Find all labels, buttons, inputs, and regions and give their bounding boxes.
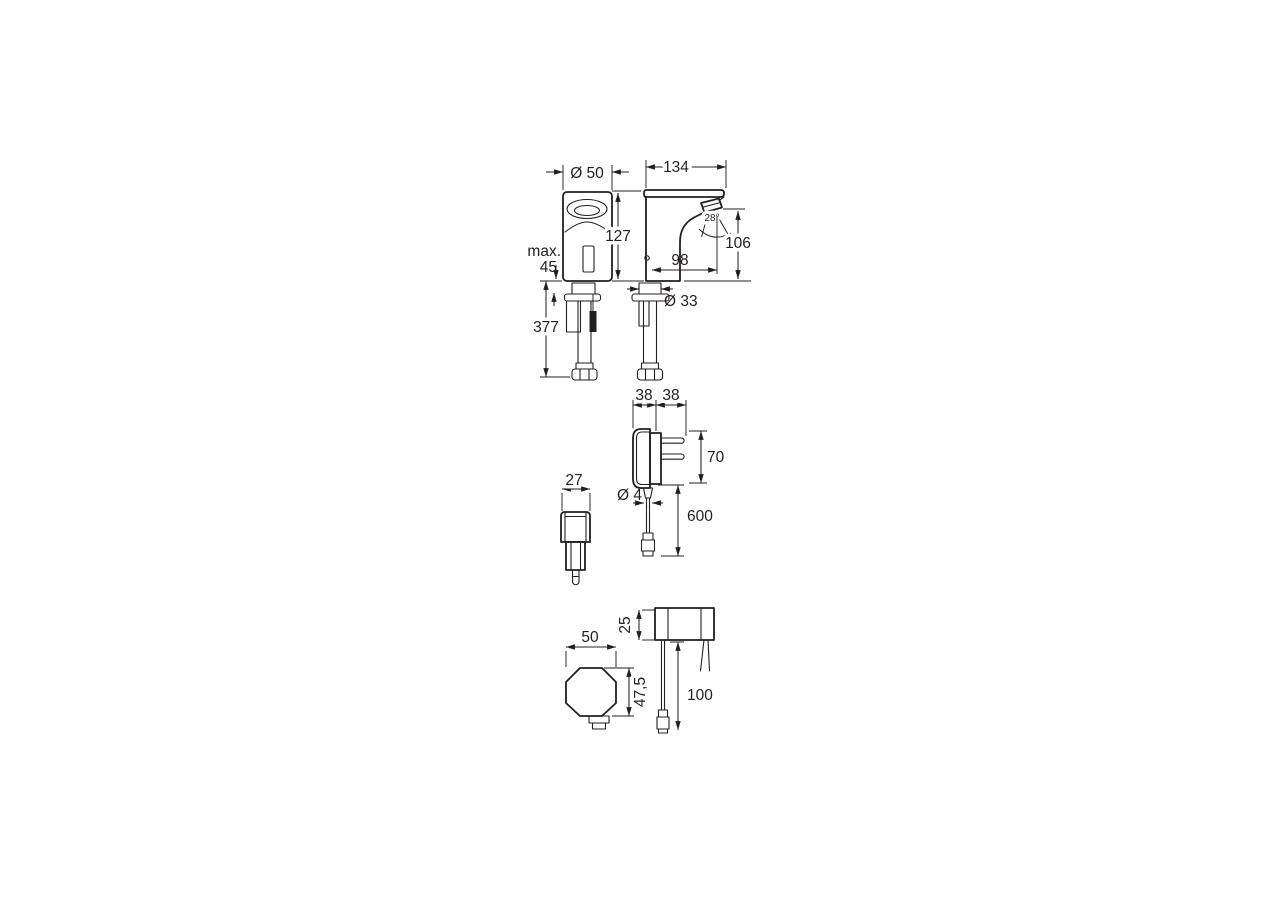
hose-collar-side [642,363,659,369]
control-box-octagon [566,668,616,716]
dim-cable-diameter: Ø 4 [617,487,642,504]
psu-body [633,429,650,488]
dc-connector-tip [643,551,653,556]
dim-box-cable-length: 100 [687,687,713,704]
dim-side-height: 127 [605,228,631,245]
faucet-top-cap [644,190,724,197]
psu-cable-boot [644,488,653,498]
dim-reach: 98 [671,252,688,269]
control-box-side-body [655,608,714,640]
hose-nut-front [572,369,597,380]
dim-psu-pin-depth: 38 [662,387,679,404]
sensor-window [583,246,594,272]
sensor-cable-weight [590,311,597,332]
dim-box-depth: 47,5 [632,677,649,707]
power-supply-side-view: 38 38 70 Ø 4 600 [617,387,725,556]
dc-connector-neck [643,533,653,540]
dim-side-width: 134 [663,159,689,176]
psu-plug-face [650,433,661,484]
psu-front-pin [573,570,580,585]
mounting-flange-front [565,294,601,301]
psu-front-base [566,542,585,570]
hose-collar-front [576,363,593,369]
box-cable-connector-body [657,717,669,729]
control-box-top-view: 50 47,5 [566,629,649,729]
dim-psu-body-width: 38 [635,387,652,404]
psu-pin-top [661,438,684,443]
control-box-side-view: 25 100 [617,608,714,733]
dim-psu-height: 70 [707,449,725,466]
dim-psu-front-width: 27 [565,472,582,489]
dim-cable-length: 600 [687,508,713,525]
threaded-shank-front [572,283,595,294]
dim-box-height: 25 [617,616,634,633]
drawing-page: Ø 50 max. 45 377 134 [0,0,1280,900]
dim-front-diameter: Ø 50 [570,165,604,182]
dim-box-width: 50 [581,629,599,646]
sensor-wire-right [708,640,710,671]
dim-outlet-height: 106 [725,235,751,252]
dim-max-label: max. [527,243,561,260]
dim-install-depth: 377 [533,319,559,336]
power-supply-front-view: 27 [561,472,590,585]
sensor-wire-left [701,640,705,671]
dc-connector-body [642,540,655,551]
dim-max-value: 45 [540,259,557,276]
threaded-shank-side [639,283,661,294]
box-connector-inner [593,723,606,729]
box-cable-connector-tip [659,729,668,733]
psu-pin-bottom [661,454,684,459]
outlet-nozzle [701,199,722,213]
dim-shank-diameter: Ø 33 [664,293,698,310]
technical-drawing: Ø 50 max. 45 377 134 [0,0,1280,900]
box-connector-outer [589,716,609,723]
box-cable-connector-neck [659,710,668,717]
spout-hood-curve [565,222,610,232]
hose-nut-side [638,369,663,380]
spout-opening-inner [575,206,600,216]
braided-hose-side [644,301,657,363]
faucet-side-view: 134 28° 127 106 98 [605,159,751,380]
faucet-front-view: Ø 50 max. 45 377 [527,165,629,380]
